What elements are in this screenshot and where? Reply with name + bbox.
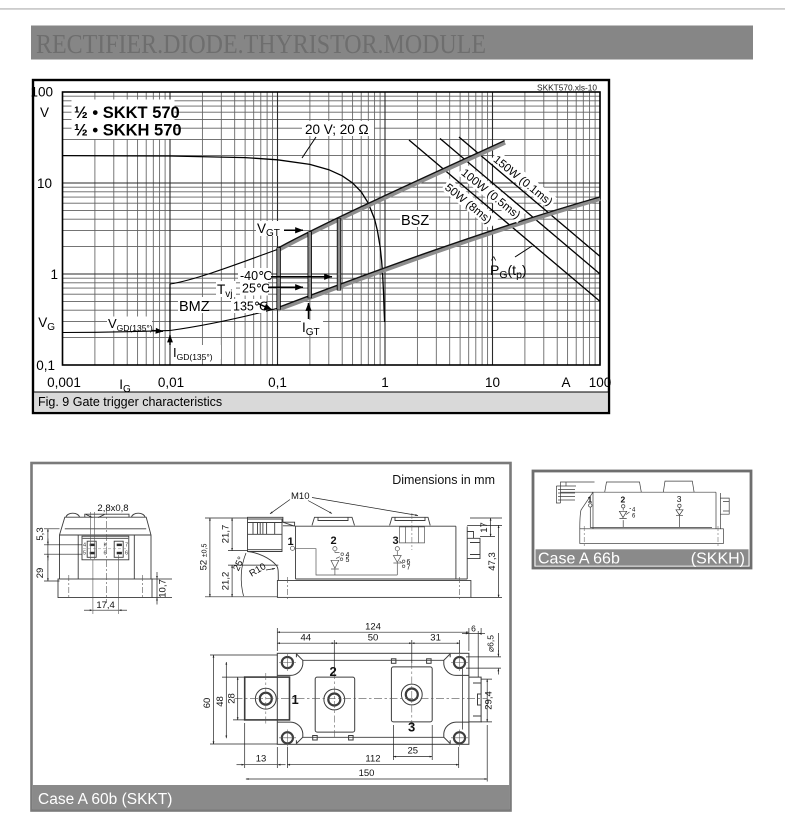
svg-text:2: 2 <box>330 664 337 679</box>
svg-text:7: 7 <box>125 542 128 548</box>
svg-text:3: 3 <box>408 720 415 735</box>
svg-text:1: 1 <box>381 375 389 390</box>
svg-text:4: 4 <box>83 542 86 548</box>
svg-text:10: 10 <box>485 375 500 390</box>
svg-text:17: 17 <box>479 522 490 533</box>
svg-text:21,2: 21,2 <box>221 572 232 591</box>
svg-text:28: 28 <box>227 693 238 704</box>
svg-text:3: 3 <box>677 494 682 504</box>
svg-text:44: 44 <box>301 633 312 644</box>
svg-text:50: 50 <box>368 633 379 644</box>
svg-text:13: 13 <box>256 754 267 765</box>
svg-text:112: 112 <box>365 754 380 765</box>
svg-text:25: 25 <box>408 746 419 757</box>
svg-text:Fig. 9 Gate trigger characteri: Fig. 9 Gate trigger characteristics <box>38 395 222 409</box>
svg-text:6: 6 <box>104 551 107 557</box>
svg-text:20 V; 20 Ω: 20 V; 20 Ω <box>305 122 369 137</box>
svg-text:½ • SKKH 570: ½ • SKKH 570 <box>74 122 182 140</box>
svg-text:K: K <box>104 542 108 548</box>
svg-text:2: 2 <box>621 495 626 505</box>
svg-text:2,8x0,8: 2,8x0,8 <box>97 503 128 514</box>
svg-text:25℃: 25℃ <box>242 282 270 296</box>
svg-text:1: 1 <box>50 267 58 282</box>
svg-text:21,7: 21,7 <box>221 525 232 544</box>
svg-text:Dimensions in mm: Dimensions in mm <box>392 473 495 487</box>
svg-text:A: A <box>561 375 570 390</box>
svg-text:1: 1 <box>588 495 593 505</box>
svg-text:48: 48 <box>215 696 226 707</box>
svg-text:135℃: 135℃ <box>233 300 268 314</box>
svg-text:10: 10 <box>37 176 52 191</box>
svg-text:7: 7 <box>407 565 411 572</box>
svg-text:5: 5 <box>346 557 350 564</box>
svg-text:⌀6,5: ⌀6,5 <box>486 635 496 652</box>
svg-text:100: 100 <box>589 375 612 390</box>
svg-text:6: 6 <box>471 624 476 634</box>
svg-text:Case A 66b: Case A 66b <box>538 551 620 568</box>
svg-text:150: 150 <box>359 768 375 779</box>
svg-text:2: 2 <box>331 535 337 547</box>
svg-text:RECTIFIER.DIODE.THYRISTOR.MODU: RECTIFIER.DIODE.THYRISTOR.MODULE <box>36 29 486 59</box>
svg-text:Case A 60b (SKKT): Case A 60b (SKKT) <box>38 791 172 808</box>
svg-text:29: 29 <box>35 568 46 579</box>
svg-text:17,4: 17,4 <box>96 600 115 611</box>
svg-text:6: 6 <box>125 551 128 557</box>
svg-text:BSZ: BSZ <box>401 213 429 229</box>
svg-text:½ • SKKT 570: ½ • SKKT 570 <box>74 104 180 122</box>
svg-text:5: 5 <box>83 551 86 557</box>
svg-text:0,01: 0,01 <box>158 375 184 390</box>
svg-text:SKKT570.xls-10: SKKT570.xls-10 <box>537 83 597 93</box>
svg-text:0,1: 0,1 <box>36 358 55 373</box>
svg-text:100: 100 <box>30 85 53 100</box>
svg-text:M10: M10 <box>291 491 309 502</box>
svg-text:0,001: 0,001 <box>47 375 81 390</box>
svg-text:1: 1 <box>288 536 294 548</box>
svg-text:124: 124 <box>365 622 381 633</box>
svg-text:60: 60 <box>202 698 213 709</box>
svg-text:29,4: 29,4 <box>484 691 495 710</box>
svg-text:47,3: 47,3 <box>487 552 498 571</box>
svg-text:5,3: 5,3 <box>35 527 46 540</box>
svg-text:(SKKH): (SKKH) <box>691 551 745 568</box>
svg-text:0,1: 0,1 <box>268 375 287 390</box>
svg-text:1: 1 <box>292 692 299 707</box>
svg-text:31: 31 <box>430 633 441 644</box>
svg-text:3: 3 <box>393 535 399 547</box>
svg-text:10,7: 10,7 <box>158 579 169 598</box>
svg-text:V: V <box>40 105 49 120</box>
svg-text:BMZ: BMZ <box>179 299 210 315</box>
